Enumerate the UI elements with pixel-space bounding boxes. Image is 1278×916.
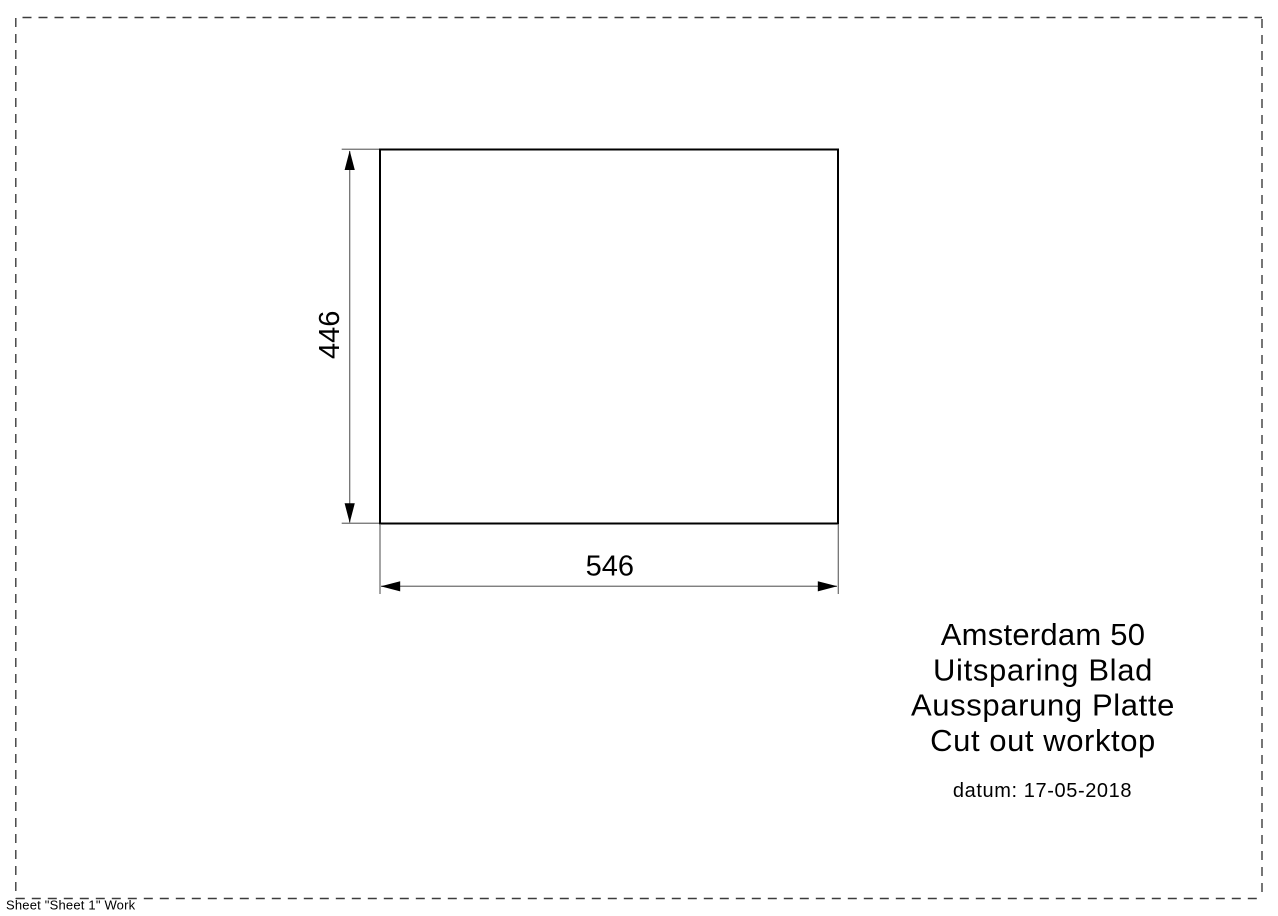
svg-text:Aussparung Platte: Aussparung Platte — [911, 688, 1175, 723]
svg-text:datum: 17-05-2018: datum: 17-05-2018 — [953, 780, 1132, 802]
svg-text:446: 446 — [314, 311, 346, 359]
svg-text:546: 546 — [586, 551, 634, 583]
svg-text:Amsterdam 50: Amsterdam 50 — [941, 617, 1146, 652]
svg-text:Cut out worktop: Cut out worktop — [930, 723, 1156, 758]
svg-text:Uitsparing Blad: Uitsparing Blad — [933, 652, 1153, 687]
svg-text:Sheet "Sheet 1" Work: Sheet "Sheet 1" Work — [6, 898, 136, 913]
